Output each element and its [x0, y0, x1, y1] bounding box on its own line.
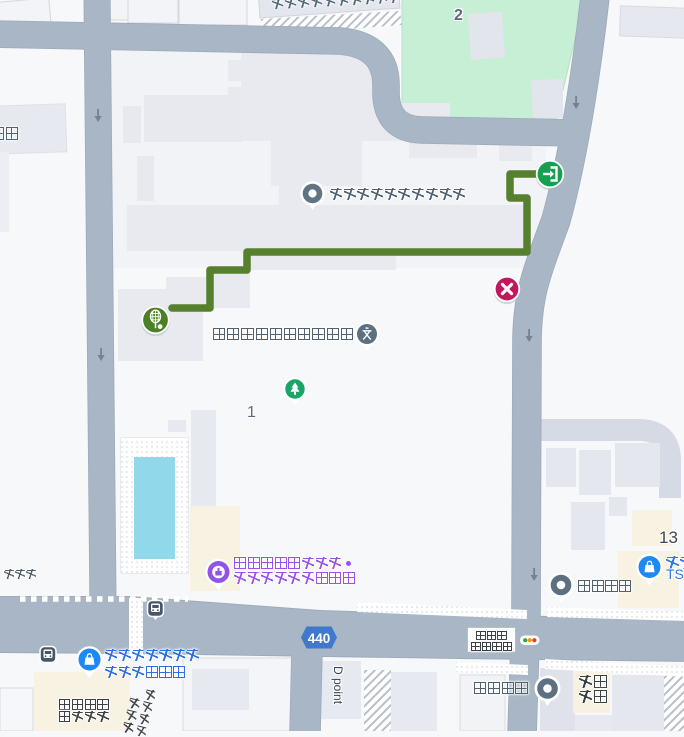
svg-text:440: 440: [308, 631, 331, 646]
